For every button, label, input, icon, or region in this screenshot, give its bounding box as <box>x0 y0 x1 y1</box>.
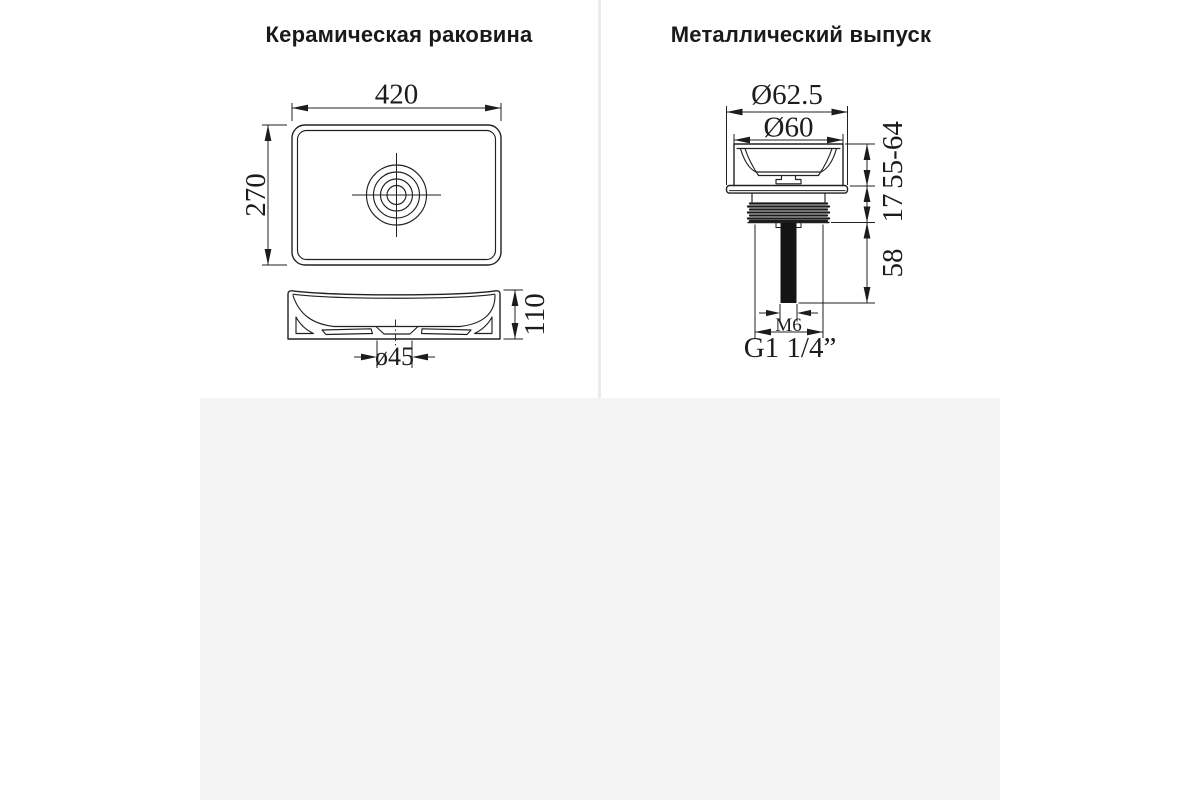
sink-top-view <box>292 125 501 265</box>
dim-width-420: 420 <box>292 79 501 122</box>
drain-thread-section <box>748 204 829 223</box>
dim-drain-label: ø45 <box>375 342 414 371</box>
dim-thread-size-label: G1 1/4” <box>744 332 837 364</box>
metal-drain-panel: Металлический выпуск Ø62.5 Ø60 <box>602 0 1000 398</box>
dim-width-label: 420 <box>375 79 419 111</box>
ceramic-sink-panel: Керамическая раковина 420 <box>200 0 598 398</box>
dim-drain-45: ø45 <box>354 341 435 372</box>
sink-side-view <box>288 291 500 347</box>
panel-divider <box>598 0 601 398</box>
dim-depth-label: 270 <box>240 173 272 217</box>
dim-flange-inner-label: Ø60 <box>764 112 814 144</box>
dim-thread-height-label: 17 <box>877 194 909 223</box>
dim-tail-length-label: 58 <box>877 249 909 278</box>
drain-flange-and-bowl <box>727 144 848 202</box>
drain-tail-rod <box>776 223 801 304</box>
dim-height-label: 110 <box>519 293 551 335</box>
metal-drain-drawing: Ø62.5 Ø60 <box>602 0 1000 398</box>
dim-flange-outer-label: Ø62.5 <box>751 79 823 111</box>
dim-flange-inner: Ø60 <box>734 112 843 145</box>
dim-height-range-label: 55-64 <box>877 121 909 189</box>
ceramic-sink-drawing: 420 270 <box>200 0 598 398</box>
lower-gray-section <box>200 398 1000 800</box>
dim-depth-270: 270 <box>240 125 287 265</box>
dim-height-110: 110 <box>504 290 552 339</box>
